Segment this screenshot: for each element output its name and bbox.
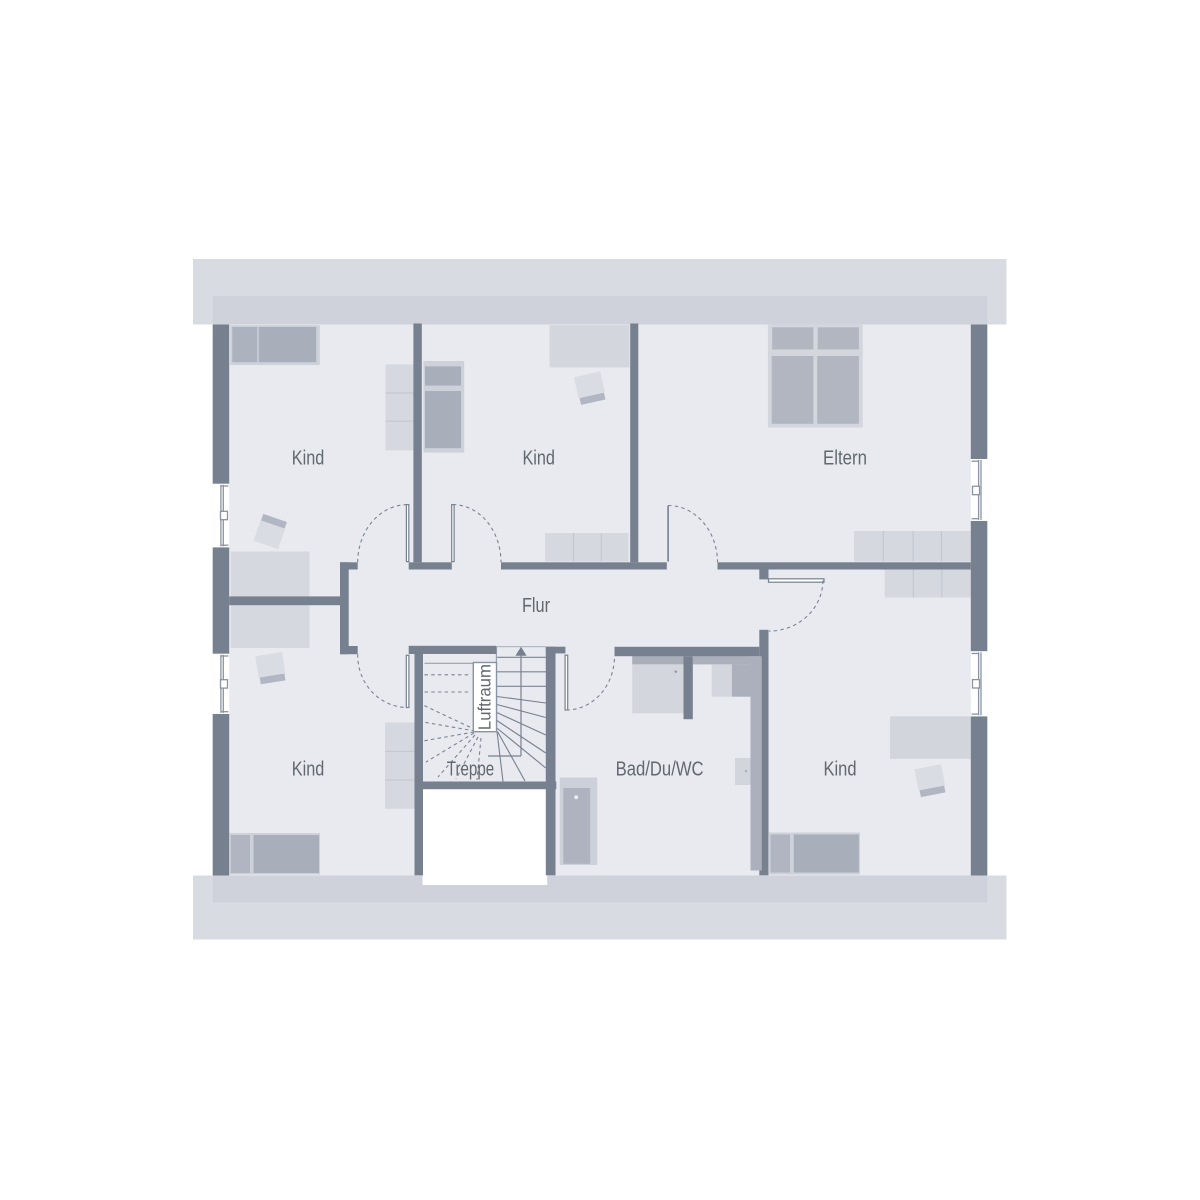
svg-text:Flur: Flur [522,594,550,617]
svg-text:Kind: Kind [292,447,325,470]
svg-text:Luftraum: Luftraum [474,664,494,730]
svg-text:Kind: Kind [292,758,325,781]
svg-text:Kind: Kind [824,758,857,781]
svg-text:Treppe: Treppe [447,758,495,781]
svg-text:Bad/Du/WC: Bad/Du/WC [616,758,704,781]
svg-text:Eltern: Eltern [823,447,867,470]
svg-text:Kind: Kind [522,447,555,470]
